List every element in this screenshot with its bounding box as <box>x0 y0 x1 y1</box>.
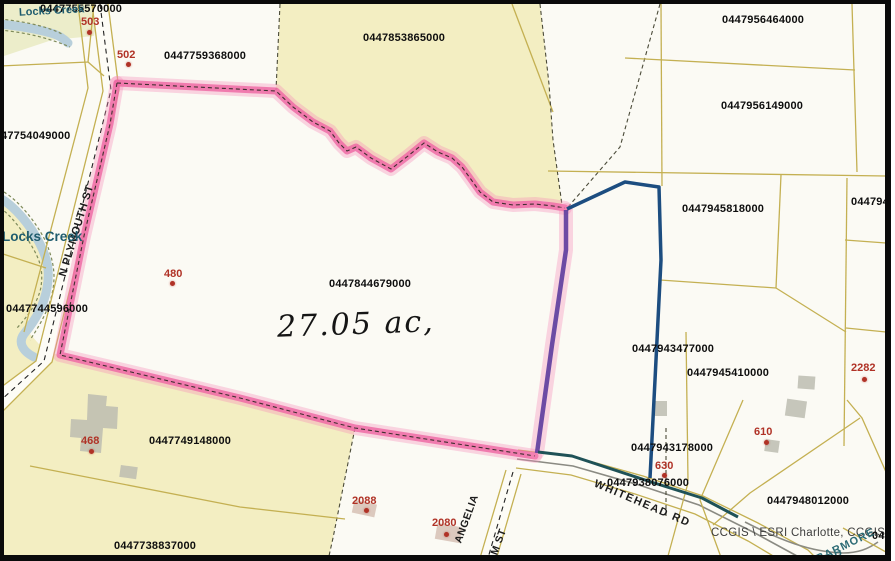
parcel-id-label: 47754049000 <box>1 131 71 142</box>
parcel-id-label: 0447945818000 <box>682 204 764 215</box>
parcel-id-label: 0447948012000 <box>767 496 849 507</box>
parcel-id-label: 0447744596000 <box>6 304 88 315</box>
site-number-label: 503 <box>81 17 99 28</box>
site-number-label: 610 <box>754 427 772 438</box>
water-name-label: Locks Creek <box>2 230 82 244</box>
parcel-id-label: 0447956464000 <box>722 15 804 26</box>
parcel-id-label: 0447853865000 <box>363 33 445 44</box>
parcel-id-label: 0447943477000 <box>632 344 714 355</box>
parcel-id-label: 0447943178000 <box>631 443 713 454</box>
map-labels: 27.05 ac, CCGIS \ ESRI Charlotte, CCGIS … <box>0 0 886 561</box>
site-number-label: 2282 <box>851 363 875 374</box>
site-marker-dot <box>364 508 369 513</box>
parcel-id-label: 0447844679000 <box>329 279 411 290</box>
parcel-id-label: 0447759368000 <box>164 51 246 62</box>
water-name-label: Locks Creek <box>19 4 85 18</box>
site-marker-dot <box>764 440 769 445</box>
parcel-id-label: 0447949 <box>851 197 886 208</box>
map-border-right <box>885 0 891 561</box>
map-border-left <box>0 0 4 561</box>
site-number-label: 2088 <box>352 496 376 507</box>
site-marker-dot <box>89 449 94 454</box>
site-marker-dot <box>170 281 175 286</box>
site-number-label: 2080 <box>432 518 456 529</box>
site-number-label: 630 <box>655 461 673 472</box>
site-number-label: 502 <box>117 50 135 61</box>
site-number-label: 468 <box>81 436 99 447</box>
road-name-label: M ST <box>489 527 508 556</box>
site-marker-dot <box>444 532 449 537</box>
parcel-id-label: 0447749148000 <box>149 436 231 447</box>
site-marker-dot <box>126 62 131 67</box>
road-name-label: ANGELIA <box>453 493 480 544</box>
map-canvas: 27.05 ac, CCGIS \ ESRI Charlotte, CCGIS … <box>0 0 886 561</box>
acreage-annotation: 27.05 ac, <box>276 304 435 344</box>
parcel-id-label: 0447956149000 <box>721 101 803 112</box>
site-marker-dot <box>862 377 867 382</box>
map-border-top <box>0 0 891 4</box>
parcel-id-label: 0447945410000 <box>687 368 769 379</box>
parcel-id-label: 0447738837000 <box>114 541 196 552</box>
site-marker-dot <box>662 473 667 478</box>
map-border-bottom <box>0 555 891 561</box>
parcel-map[interactable]: 27.05 ac, CCGIS \ ESRI Charlotte, CCGIS … <box>0 0 895 561</box>
site-marker-dot <box>87 30 92 35</box>
site-number-label: 480 <box>164 269 182 280</box>
